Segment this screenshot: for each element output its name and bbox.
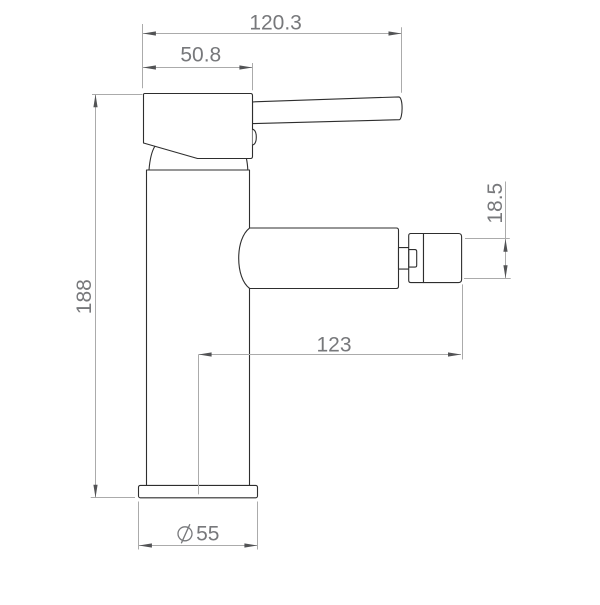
svg-text:18.5: 18.5 bbox=[484, 183, 507, 224]
svg-text:55: 55 bbox=[196, 523, 219, 546]
svg-text:188: 188 bbox=[73, 279, 96, 314]
svg-text:50.8: 50.8 bbox=[180, 43, 221, 66]
svg-text:120.3: 120.3 bbox=[249, 11, 302, 34]
svg-text:123: 123 bbox=[316, 333, 351, 356]
